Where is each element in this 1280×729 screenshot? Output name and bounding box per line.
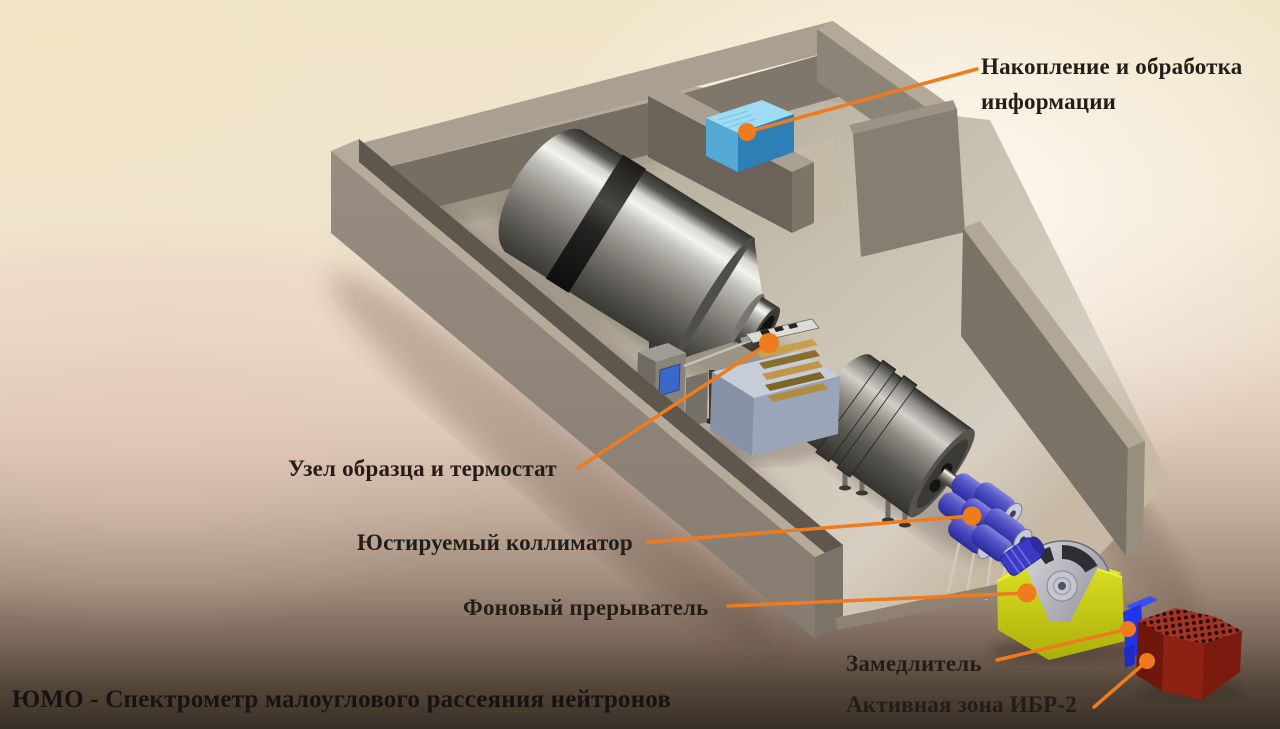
annex-se-wall [849, 100, 965, 257]
callout-dot-moderator [1120, 621, 1136, 637]
core-face-front [1162, 635, 1204, 700]
label-moderator: Замедлитель [846, 651, 982, 677]
annex-se-wall-face [853, 109, 965, 257]
callout-dot-daq [738, 123, 756, 141]
label-chopper: Фоновый прерыватель [463, 595, 709, 621]
right-wall-end [1126, 441, 1145, 556]
leader-core [1094, 661, 1147, 707]
label-sample: Узел образца и термостат [288, 456, 557, 482]
figure-title: ЮМО - Спектрометр малоуглового рассеяния… [12, 686, 671, 714]
callout-dot-chopper [1018, 584, 1037, 603]
reactor-core [1123, 596, 1242, 702]
spectrometer-figure: Накопление и обработка информации Узел о… [0, 0, 1280, 729]
ledge-wall-end [792, 162, 814, 233]
callout-dot-sample [759, 333, 779, 353]
label-daq: Накопление и обработка информации [981, 49, 1280, 119]
callout-dot-collimator [963, 507, 982, 526]
callout-dot-core [1139, 653, 1155, 669]
label-core: Активная зона ИБР-2 [846, 692, 1077, 718]
label-collimator: Юстируемый коллиматор [357, 530, 633, 556]
